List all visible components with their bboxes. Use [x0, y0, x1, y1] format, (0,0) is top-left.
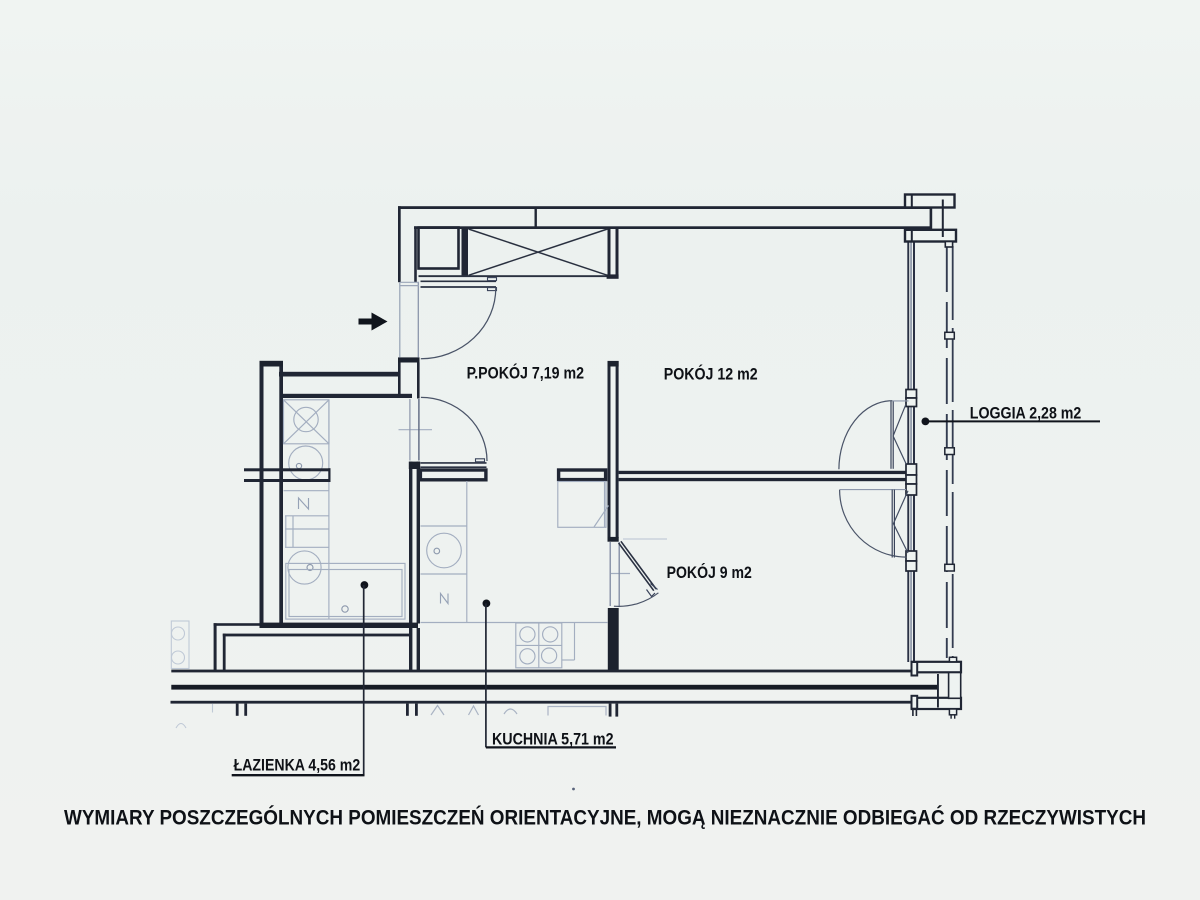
- svg-text:POKÓJ 9 m2: POKÓJ 9 m2: [667, 563, 752, 582]
- svg-text:P.POKÓJ 7,19 m2: P.POKÓJ 7,19 m2: [467, 364, 584, 383]
- svg-text:POKÓJ 12 m2: POKÓJ 12 m2: [664, 364, 758, 383]
- svg-text:KUCHNIA 5,71 m2: KUCHNIA 5,71 m2: [492, 729, 614, 748]
- svg-text:WYMIARY POSZCZEGÓLNYCH POMIESZ: WYMIARY POSZCZEGÓLNYCH POMIESZCZEŃ ORIEN…: [64, 806, 1146, 830]
- svg-text:LOGGIA 2,28 m2: LOGGIA 2,28 m2: [970, 403, 1082, 422]
- svg-text:ŁAZIENKA 4,56 m2: ŁAZIENKA 4,56 m2: [234, 756, 361, 775]
